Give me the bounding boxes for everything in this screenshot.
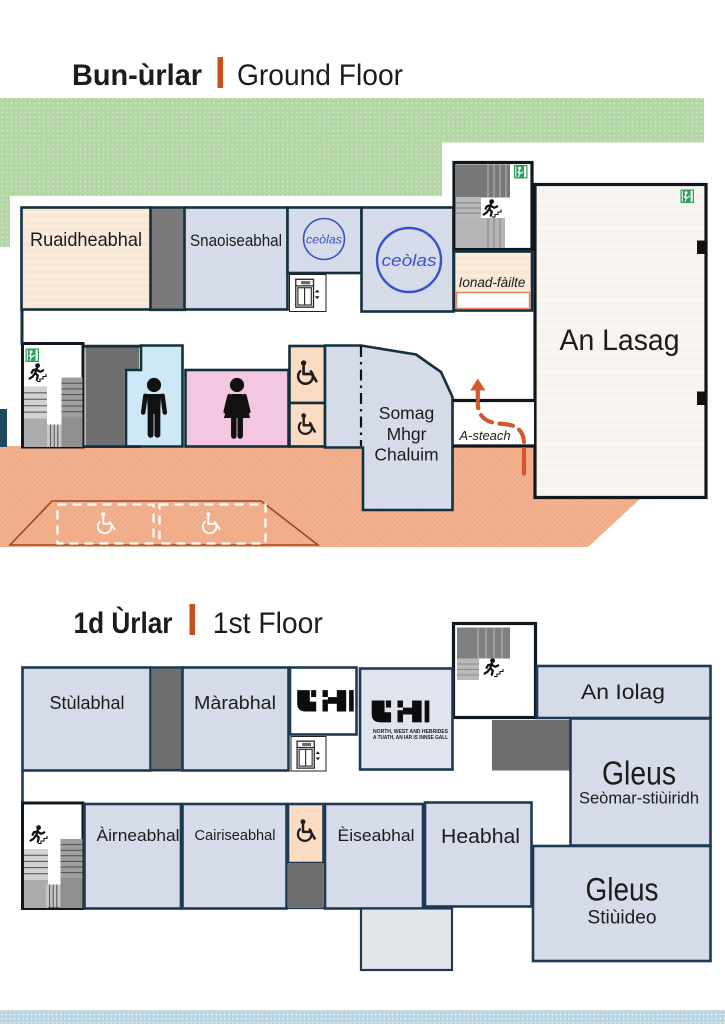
- svg-text:Màrabhal: Màrabhal: [194, 692, 276, 713]
- svg-text:An Lasag: An Lasag: [560, 324, 680, 357]
- svg-text:Ruaidheabhal: Ruaidheabhal: [30, 229, 142, 251]
- svg-text:Èiseabhal: Èiseabhal: [338, 826, 415, 845]
- svg-text:Seòmar-stiùiridh: Seòmar-stiùiridh: [579, 789, 699, 808]
- svg-text:Àirneabhal: Àirneabhal: [97, 826, 180, 845]
- svg-text:Somag: Somag: [379, 403, 434, 423]
- svg-text:Bun-ùrlar: Bun-ùrlar: [72, 59, 202, 92]
- svg-text:Chaluim: Chaluim: [374, 445, 438, 465]
- svg-text:Gleus: Gleus: [602, 755, 676, 792]
- svg-text:An Iolag: An Iolag: [581, 680, 665, 704]
- svg-text:Stiùideo: Stiùideo: [588, 908, 657, 929]
- svg-text:1d Ùrlar: 1d Ùrlar: [74, 606, 173, 640]
- svg-text:Cairiseabhal: Cairiseabhal: [195, 827, 276, 844]
- svg-text:Gleus: Gleus: [586, 872, 659, 908]
- svg-text:A-steach: A-steach: [458, 428, 510, 443]
- svg-text:Mhgr: Mhgr: [387, 424, 427, 444]
- svg-text:Ground Floor: Ground Floor: [237, 59, 403, 92]
- svg-text:Heabhal: Heabhal: [441, 825, 520, 848]
- svg-text:Snaoiseabhal: Snaoiseabhal: [190, 231, 282, 250]
- svg-text:Stùlabhal: Stùlabhal: [49, 693, 124, 713]
- svg-text:1st Floor: 1st Floor: [213, 607, 323, 640]
- svg-text:ceòlas: ceòlas: [306, 233, 342, 247]
- svg-text:A TUATH, AN IAR IS INNSE GALL: A TUATH, AN IAR IS INNSE GALL: [373, 735, 449, 741]
- svg-text:ceòlas: ceòlas: [382, 251, 438, 270]
- svg-text:Ionad-fàilte: Ionad-fàilte: [459, 275, 526, 290]
